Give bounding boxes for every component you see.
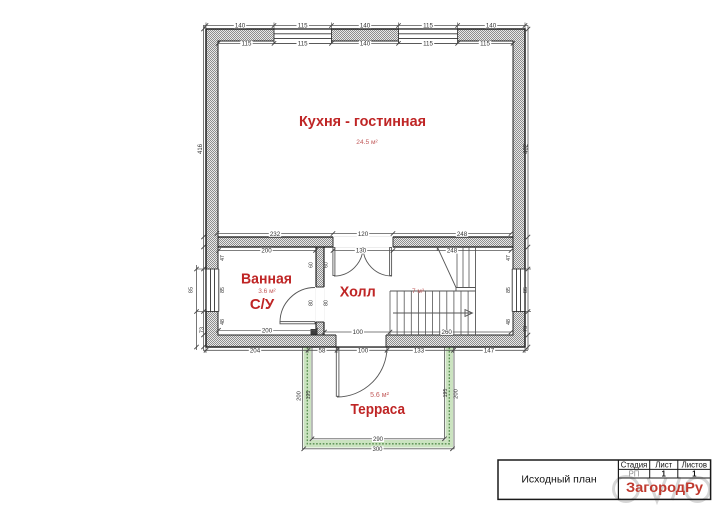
svg-text:80: 80 bbox=[309, 300, 315, 306]
svg-text:300: 300 bbox=[372, 447, 383, 453]
svg-text:5.6 м²: 5.6 м² bbox=[370, 392, 389, 399]
svg-text:115: 115 bbox=[480, 41, 490, 48]
svg-text:48: 48 bbox=[506, 319, 512, 325]
svg-text:133: 133 bbox=[414, 348, 425, 355]
svg-text:195: 195 bbox=[443, 389, 449, 398]
svg-text:58: 58 bbox=[319, 348, 326, 355]
svg-text:140: 140 bbox=[360, 41, 371, 48]
svg-text:1: 1 bbox=[662, 470, 667, 479]
svg-text:200: 200 bbox=[296, 391, 302, 401]
svg-text:47: 47 bbox=[506, 255, 512, 261]
svg-text:73: 73 bbox=[200, 327, 206, 333]
svg-text:80: 80 bbox=[324, 300, 330, 306]
svg-text:24.5 м²: 24.5 м² bbox=[356, 139, 378, 146]
svg-text:402: 402 bbox=[523, 143, 529, 154]
svg-text:7 м²: 7 м² bbox=[412, 288, 425, 295]
svg-text:416: 416 bbox=[198, 143, 204, 154]
svg-text:Ванная: Ванная bbox=[241, 272, 292, 288]
svg-text:85: 85 bbox=[220, 287, 226, 293]
svg-text:290: 290 bbox=[373, 437, 384, 443]
svg-text:ЗагородРу: ЗагородРу bbox=[626, 480, 704, 495]
svg-text:100: 100 bbox=[358, 348, 369, 355]
svg-text:47: 47 bbox=[220, 255, 226, 261]
svg-text:РП: РП bbox=[629, 470, 640, 479]
svg-text:Листов: Листов bbox=[682, 460, 707, 469]
svg-text:85: 85 bbox=[188, 287, 194, 293]
svg-text:60: 60 bbox=[324, 262, 330, 268]
svg-text:48: 48 bbox=[220, 319, 226, 325]
svg-text:Кухня - гостинная: Кухня - гостинная bbox=[299, 114, 426, 130]
svg-text:115: 115 bbox=[298, 41, 308, 48]
svg-text:Лист: Лист bbox=[655, 460, 672, 469]
svg-text:248: 248 bbox=[457, 231, 468, 238]
svg-text:100: 100 bbox=[353, 329, 364, 336]
svg-text:115: 115 bbox=[242, 41, 252, 48]
svg-text:3.6 м²: 3.6 м² bbox=[258, 288, 276, 295]
svg-text:120: 120 bbox=[358, 231, 369, 238]
svg-text:200: 200 bbox=[453, 389, 459, 399]
svg-text:195: 195 bbox=[306, 391, 312, 400]
svg-text:Терраса: Терраса bbox=[351, 401, 406, 418]
svg-text:73: 73 bbox=[523, 326, 529, 332]
svg-text:200: 200 bbox=[262, 327, 273, 334]
svg-text:260: 260 bbox=[442, 329, 453, 336]
svg-text:1: 1 bbox=[692, 470, 697, 479]
svg-text:130: 130 bbox=[356, 248, 367, 255]
svg-text:60: 60 bbox=[309, 262, 315, 268]
svg-text:248: 248 bbox=[447, 248, 458, 255]
svg-text:85: 85 bbox=[523, 287, 529, 293]
svg-text:Исходный план: Исходный план bbox=[521, 474, 596, 486]
svg-text:Холл: Холл bbox=[340, 283, 376, 300]
svg-text:115: 115 bbox=[423, 41, 433, 48]
svg-text:204: 204 bbox=[250, 348, 261, 355]
svg-text:С/У: С/У bbox=[250, 296, 275, 313]
svg-text:232: 232 bbox=[270, 231, 281, 238]
svg-text:200: 200 bbox=[261, 248, 272, 255]
svg-text:147: 147 bbox=[484, 348, 495, 355]
svg-text:85: 85 bbox=[506, 287, 512, 293]
svg-text:Стадия: Стадия bbox=[621, 460, 648, 469]
